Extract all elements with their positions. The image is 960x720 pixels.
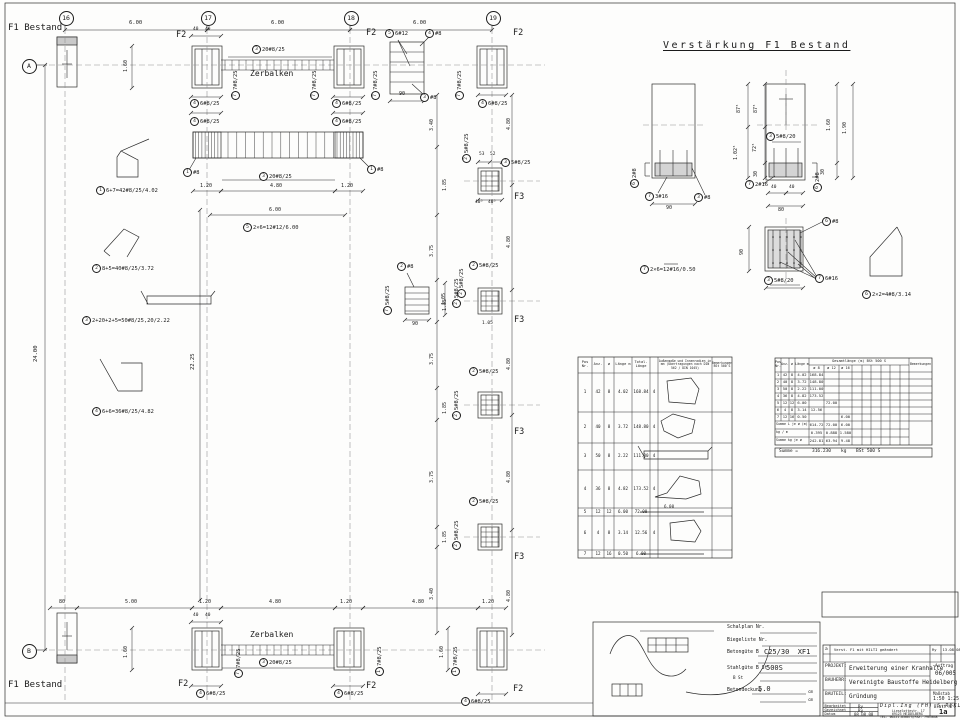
- dim: 4.80: [269, 600, 281, 605]
- rebar-callout: 16+7=42#8/25/4.02: [96, 186, 158, 195]
- summe-unit: kg: [841, 450, 846, 455]
- position-bubble: 4: [425, 29, 434, 38]
- table-cell: 614.72: [809, 421, 824, 429]
- rebar-callout-text: 5#8/25: [510, 160, 530, 166]
- label-f3: F3: [514, 316, 524, 325]
- rebar-callout: 77#8/25: [234, 649, 243, 678]
- table-cell: 12.56: [632, 516, 650, 550]
- table-cell: 4: [781, 407, 789, 414]
- rebar-callout: 25#8/25: [469, 367, 498, 376]
- table-cell: 72.00: [824, 421, 839, 429]
- position-bubble: 2: [469, 261, 478, 270]
- rebar-callout: 3#8: [694, 193, 711, 202]
- position-bubble: 5: [243, 223, 252, 232]
- dim: 40: [193, 614, 198, 619]
- position-bubble: 3: [764, 276, 773, 285]
- rebar-callout-text: #8: [376, 167, 384, 173]
- bauteil-label: BAUTEIL:: [825, 692, 847, 697]
- rebar-callout-text: 7#8/25: [312, 71, 318, 91]
- dim: 1.85: [443, 402, 448, 414]
- rebar-callout: 72#16: [745, 180, 768, 189]
- position-bubble: 4: [332, 99, 341, 108]
- rebar-callout: 2#8: [397, 262, 414, 271]
- rebar-callout-text: 6#8/25: [199, 119, 219, 125]
- rebar-callout-text: #8: [406, 264, 414, 270]
- rebar-callout: 62#8: [813, 172, 822, 192]
- rebar-callout: 3#8: [420, 93, 437, 102]
- rebar-callout: 46+6=36#8/25/4.82: [92, 407, 154, 416]
- table-cell: 12: [781, 414, 789, 421]
- rebar-callout: 35#8/25: [501, 158, 530, 167]
- dim: 53: [479, 153, 484, 158]
- rebar-callout: 46#8/25: [478, 99, 507, 108]
- dim: 40: [193, 28, 198, 33]
- rebar-callout: 320#8/25: [259, 658, 292, 667]
- label-f2: F2: [178, 680, 188, 689]
- table-cell: 8: [604, 470, 614, 508]
- dim: 40: [789, 186, 794, 191]
- table-cell: 36: [781, 393, 789, 400]
- position-bubble: 4: [478, 99, 487, 108]
- dim: 4.80: [270, 184, 282, 189]
- position-bubble: 2: [92, 264, 101, 273]
- dim: 4.80: [507, 358, 512, 370]
- table-cell: 3.72: [795, 379, 809, 386]
- datum-value: 08.08.08: [854, 712, 873, 717]
- dim: 3.40: [430, 119, 435, 131]
- position-bubble: 1: [375, 667, 384, 676]
- position-bubble: 1: [451, 667, 460, 676]
- table-cell: 2: [578, 412, 592, 443]
- massstab-label: Maßstab: [933, 691, 950, 696]
- rebar-callout: 72×6=12#16/0.50: [640, 265, 695, 274]
- label-f1-bestand-bottom: F1 Bestand: [8, 681, 62, 690]
- rebar-callout-text: 5#8/25: [385, 286, 391, 306]
- rebar-callout-text: 6#8/25: [199, 101, 219, 107]
- dim: 1.90: [843, 122, 848, 134]
- rebar-callout-text: 6#8/25: [341, 101, 361, 107]
- rebar-callout-text: 6+7=42#8/25/4.02: [105, 188, 158, 194]
- table-cell: 0.888: [824, 429, 839, 437]
- table-cell: 6.00: [614, 508, 632, 516]
- position-bubble: 3: [259, 172, 268, 181]
- dim: 4.80: [507, 236, 512, 248]
- grid-bubble: A: [22, 59, 37, 74]
- table-cell: 40: [781, 379, 789, 386]
- label-f2: F2: [176, 31, 186, 40]
- rebar-callout-text: 5#8/25: [478, 499, 498, 505]
- table-cell: Länge m: [795, 358, 809, 372]
- rebar-callout-text: #8: [429, 95, 437, 101]
- dim: 90: [412, 322, 418, 327]
- label-zerbalken-top: Zerbalken: [250, 70, 293, 78]
- rebar-callout-text: 5#8/20: [775, 134, 795, 140]
- table-cell: 4.82: [614, 470, 632, 508]
- position-bubble: 4: [332, 117, 341, 126]
- dim: 87⁵: [754, 104, 759, 113]
- dim: 1.60: [827, 119, 832, 131]
- rebar-callout: 52×6=12#12/6.00: [243, 223, 298, 232]
- dim: 4.80: [507, 471, 512, 483]
- table-cell: 1.580: [839, 429, 852, 437]
- table-cell: 148.80: [632, 412, 650, 443]
- dim: 40: [205, 28, 210, 33]
- rebar-callout-text: 5#8/25: [454, 391, 460, 411]
- rebar-callout-text: 6#16: [824, 276, 838, 282]
- position-bubble: 2: [452, 299, 461, 308]
- rebar-callout: 4#8: [425, 29, 442, 38]
- cm-label: cm: [808, 689, 813, 694]
- position-bubble: 3: [766, 132, 775, 141]
- bauherr-label: BAUHERR:: [825, 678, 847, 683]
- position-bubble: 2: [469, 367, 478, 376]
- rebar-callout: 35#8/20: [766, 132, 795, 141]
- rebar-callout-text: 2#16: [754, 182, 768, 188]
- table-cell: 50: [592, 443, 604, 470]
- dim-grid: 6.00: [271, 21, 284, 27]
- dim-2225: 22.25: [191, 353, 197, 370]
- rebar-callout: 17#8/25: [375, 647, 384, 676]
- table-cell: 12: [592, 508, 604, 516]
- table-cell: 1: [578, 373, 592, 412]
- table-cell: 4: [650, 443, 658, 470]
- table-cell: 173.52: [632, 470, 650, 508]
- dim: 1.60: [124, 646, 129, 658]
- label-f3: F3: [514, 553, 524, 562]
- rebar-callout: 320#8/25: [252, 45, 285, 54]
- rebar-callout: 25#8/25: [452, 521, 461, 550]
- table-cell: 8: [604, 412, 614, 443]
- dim: 30: [754, 171, 759, 177]
- dim: 5.00: [125, 600, 137, 605]
- position-bubble: 7: [383, 306, 392, 315]
- rebar-callout-text: 20#8/25: [261, 47, 285, 53]
- table-cell: 12: [781, 400, 789, 407]
- table-cell: Gesamtlänge (m) BSt 500 S: [809, 358, 909, 365]
- table-cell: 8: [604, 373, 614, 412]
- rebar-callout-text: 7#8/25: [233, 71, 239, 91]
- rebar-callout-text: 5#8/25: [464, 134, 470, 154]
- dim: 1.05: [482, 322, 493, 327]
- table-cell: 0.50: [614, 550, 632, 558]
- rebar-callout: 46#8/25: [332, 117, 361, 126]
- dim-shape: 6.00: [664, 505, 674, 509]
- rebar-callout: 75#8/25: [383, 286, 392, 315]
- dim: 1.20: [341, 184, 353, 189]
- label-f3: F3: [514, 193, 524, 202]
- table-cell: 72.00: [632, 508, 650, 516]
- drawing-sheet: F1 BestandF1 BestandVerstärkung F1 Besta…: [0, 0, 960, 720]
- label-f2: F2: [513, 685, 523, 694]
- rebar-callout-text: 6+6=36#8/25/4.82: [101, 409, 154, 415]
- grid-bubble: 18: [344, 11, 359, 26]
- table-cell: 111.00: [809, 386, 824, 393]
- dim: 1.20: [200, 184, 212, 189]
- rebar-callout: 46#8/25: [332, 99, 361, 108]
- table-cell: 12: [592, 550, 604, 558]
- rebar-callout-text: 6#8/25: [487, 101, 507, 107]
- label-f1-bestand-top: F1 Bestand: [8, 24, 62, 33]
- position-bubble: 7: [231, 91, 240, 100]
- grid-bubble: 19: [486, 11, 501, 26]
- dim: 72⁵: [753, 143, 758, 152]
- table-cell: 4: [650, 470, 658, 508]
- table-cell: 3.14: [795, 407, 809, 414]
- dim: 4.80: [507, 118, 512, 130]
- dim: 4.80: [507, 590, 512, 602]
- rebar-callout-text: 2×6=12#12/6.00: [252, 225, 298, 231]
- table-cell: 111.00: [632, 443, 650, 470]
- table-cell: 8: [604, 443, 614, 470]
- label-f2: F2: [366, 682, 376, 691]
- rebar-callout: 32+20+2+5=50#8/25,20/2.22: [82, 316, 170, 325]
- dim: 90: [740, 249, 745, 255]
- rebar-callout-text: 3#16: [654, 194, 668, 200]
- rebar-callout: 46#8/25: [196, 689, 225, 698]
- grid-bubble: 17: [201, 11, 216, 26]
- revision-text: Verst. F1 mit HILTI geändert: [834, 647, 898, 652]
- position-bubble: 4: [334, 689, 343, 698]
- table-cell: 4: [650, 516, 658, 550]
- dim: 90: [666, 206, 672, 211]
- position-bubble: 2: [452, 411, 461, 420]
- table-cell: 9.48: [839, 437, 852, 445]
- rebar-callout-text: 6#8/25: [343, 691, 363, 697]
- dim: 1.02⁵: [734, 145, 739, 160]
- table-cell: 12.56: [809, 407, 824, 414]
- annotation-layer: F1 BestandF1 BestandVerstärkung F1 Besta…: [0, 0, 960, 720]
- table-cell: 2.22: [614, 443, 632, 470]
- table-cell: 5: [578, 508, 592, 516]
- rebar-callout: 320#8/25: [259, 172, 292, 181]
- position-bubble: 7: [645, 192, 654, 201]
- table-cell: 8: [604, 516, 614, 550]
- rebar-callout-text: 7#8/25: [373, 71, 379, 91]
- table-cell: 6.00: [839, 421, 852, 429]
- rebar-callout-text: 7#8/25: [236, 649, 242, 669]
- summe-label: Summe =: [779, 450, 798, 455]
- revision-date: 13.08.08: [943, 647, 960, 652]
- position-bubble: 2: [457, 289, 466, 298]
- table-cell: Länge m: [614, 357, 632, 373]
- auftrag-value: 06/005: [935, 671, 956, 677]
- table-cell: 36: [592, 470, 604, 508]
- rebar-callout: 46#8/25: [190, 117, 219, 126]
- rebar-callout: 46#8/25: [190, 99, 219, 108]
- rebar-callout-text: 5#8/25: [478, 369, 498, 375]
- bauherr-value: Vereinigte Baustoffe Heidelberg: [849, 680, 957, 686]
- table-cell: 40: [592, 412, 604, 443]
- position-bubble: 2: [462, 154, 471, 163]
- table-cell: Anz.: [592, 357, 604, 373]
- table-cell: Pos Nr.: [578, 357, 592, 373]
- rebar-callout-text: 20#8/25: [268, 174, 292, 180]
- position-bubble: 4: [196, 689, 205, 698]
- rebar-callout: 25#8/25: [462, 134, 471, 163]
- auftrag-label: Auftrag: [935, 664, 953, 669]
- dim-grid: 6.00: [413, 21, 426, 27]
- table-cell: ø 8: [809, 365, 824, 372]
- position-bubble: 7: [371, 91, 380, 100]
- dim: 1.60: [124, 60, 129, 72]
- dim-24: 24.00: [34, 345, 40, 362]
- rebar-callout: 77#8/25: [310, 71, 319, 100]
- table-cell: 242.81: [809, 437, 824, 445]
- dim: 4.80: [412, 600, 424, 605]
- rebar-callout: 28+5=40#8/25/3.72: [92, 264, 154, 273]
- dim: 90: [399, 92, 405, 97]
- rebar-callout-text: 2×6=12#16/0.50: [649, 267, 695, 273]
- rebar-callout: 25#8/25: [457, 269, 466, 298]
- rebar-callout-text: 6#12: [394, 31, 408, 37]
- rebar-callout-text: 7#8/25: [377, 647, 383, 667]
- rebar-callout: 46#8/25: [334, 689, 363, 698]
- table-cell: 3.72: [614, 412, 632, 443]
- position-bubble: 3: [694, 193, 703, 202]
- dim: 87⁵: [737, 104, 742, 113]
- table-cell: 3.14: [614, 516, 632, 550]
- rebar-callout-text: 6#8/25: [205, 691, 225, 697]
- position-bubble: 4: [461, 697, 470, 706]
- rebar-callout-text: 7#8/25: [453, 647, 459, 667]
- rebar-callout: 56#12: [385, 29, 408, 38]
- dim: 40⁵: [475, 201, 483, 206]
- position-bubble: 2: [397, 262, 406, 271]
- position-bubble: 1: [96, 186, 105, 195]
- summe-grade: BSt 500 S: [856, 450, 880, 455]
- projekt-value: Erweiterung einer Kranhalle: [849, 666, 943, 672]
- rebar-callout-text: 5#8/20: [773, 278, 793, 284]
- label-f3: F3: [514, 428, 524, 437]
- label-zerbalken-bottom: Zerbalken: [250, 631, 293, 639]
- dim: 3.75: [430, 353, 435, 365]
- bauteil-value: Gründung: [849, 694, 877, 700]
- betonguete-label: Betongüte B: [727, 650, 759, 655]
- dim: 40: [771, 186, 776, 191]
- table-cell: Summe kg je ø: [775, 437, 810, 445]
- table-cell: 4.02: [614, 373, 632, 412]
- rebar-callout: 25#8/25: [469, 497, 498, 506]
- table-cell: 168.84: [809, 372, 824, 379]
- table-cell: Total- Länge: [632, 357, 650, 373]
- table-cell: Summe L je ø (m): [775, 421, 810, 429]
- schalplan-label: Schalplan Nr.: [727, 625, 765, 630]
- position-bubble: 3: [259, 658, 268, 667]
- rebar-callout: 76#16: [815, 274, 838, 283]
- rebar-callout-text: 5#8/25: [454, 521, 460, 541]
- table-cell: 148.80: [809, 379, 824, 386]
- position-bubble: 7: [310, 91, 319, 100]
- stahlguete-value: 500S: [766, 664, 783, 672]
- position-bubble: 2: [469, 497, 478, 506]
- table-cell: 42: [781, 372, 789, 379]
- dim-grid: 6.00: [129, 21, 142, 27]
- table-cell: kg / m: [775, 429, 810, 437]
- position-bubble: 1: [367, 165, 376, 174]
- rebar-callout: 1#8: [367, 165, 384, 174]
- rebar-callout-text: #8: [831, 219, 839, 225]
- rebar-callout-text: #8: [434, 31, 442, 37]
- position-bubble: 7: [640, 265, 649, 274]
- rebar-callout-text: 2×2=4#8/3.14: [871, 292, 911, 298]
- label-f2: F2: [513, 29, 523, 38]
- rebar-callout: 62#8: [630, 168, 639, 188]
- rebar-callout-text: 5#8/25: [459, 269, 465, 289]
- table-cell: 4: [650, 412, 658, 443]
- revision-by: Ry: [932, 647, 937, 652]
- grid-bubble: B: [22, 644, 37, 659]
- table-cell: 16: [604, 550, 614, 558]
- table-cell: 2.22: [795, 386, 809, 393]
- rebar-callout-text: 2#8: [815, 172, 821, 183]
- dim: 3.40: [430, 588, 435, 600]
- table-cell: 4: [578, 470, 592, 508]
- table-cell: 4: [592, 516, 604, 550]
- rebar-callout-text: 2#8: [632, 168, 638, 179]
- rebar-callout: 77#8/25: [455, 71, 464, 100]
- position-bubble: 3: [252, 45, 261, 54]
- dim: 80: [59, 600, 65, 605]
- massstab-value: 1:50 1:25: [933, 697, 959, 702]
- table-cell: 63.94: [824, 437, 839, 445]
- table-cell: ø 16: [839, 365, 852, 372]
- dim: 1.20: [199, 600, 211, 605]
- rebar-callout: 77#8/25: [371, 71, 380, 100]
- position-bubble: 2: [452, 541, 461, 550]
- position-bubble: 4: [190, 117, 199, 126]
- position-bubble: 7: [815, 274, 824, 283]
- dim: 6.00: [269, 208, 281, 213]
- table-cell: ø 12: [824, 365, 839, 372]
- table-cell: 4.02: [795, 372, 809, 379]
- betonguete-value: C25/30 XF1: [764, 648, 810, 656]
- label-f2: F2: [366, 29, 376, 38]
- table-cell: Bemerkungen BSt 500 S: [712, 357, 732, 373]
- position-bubble: 6: [630, 179, 639, 188]
- table-cell: 173.52: [809, 393, 824, 400]
- rebar-callout-text: #8: [703, 195, 711, 201]
- position-bubble: 6: [822, 217, 831, 226]
- rebar-callout-text: 2+20+2+5=50#8/25,20/2.22: [91, 318, 170, 324]
- table-cell: 42: [592, 373, 604, 412]
- position-bubble: 4: [190, 99, 199, 108]
- rebar-callout-text: 6#8/25: [341, 119, 361, 125]
- grid-bubble: 16: [59, 11, 74, 26]
- table-cell: 4.82: [795, 393, 809, 400]
- betondeckung-label: Betondeckung: [727, 688, 762, 693]
- table-cell: 4: [650, 373, 658, 412]
- table-cell: Außenmaße und Innenradien in mm (Übertra…: [658, 357, 712, 373]
- rebar-callout: 62×2=4#8/3.14: [862, 290, 911, 299]
- position-bubble: 6: [813, 183, 822, 192]
- rebar-callout: 77#8/25: [231, 71, 240, 100]
- table-cell: Anz.: [781, 358, 789, 372]
- position-bubble: 3: [501, 158, 510, 167]
- rebar-callout-text: 5#8/25: [478, 263, 498, 269]
- rebar-callout: 73#16: [645, 192, 668, 201]
- table-cell: 6: [578, 516, 592, 550]
- table-cell: 50: [781, 386, 789, 393]
- dim: 3.75: [430, 471, 435, 483]
- table-cell: 72.00: [824, 400, 839, 407]
- rebar-callout: 17#8/25: [451, 647, 460, 676]
- rebar-callout-text: 6#8/25: [470, 699, 490, 705]
- dim: 1.85: [443, 179, 448, 191]
- projekt-label: PROJEKT:: [825, 664, 847, 669]
- table-cell: 0.50: [795, 414, 809, 421]
- table-cell: Bemerkungen: [909, 358, 932, 372]
- betondeckung-value: 5.0: [758, 685, 771, 693]
